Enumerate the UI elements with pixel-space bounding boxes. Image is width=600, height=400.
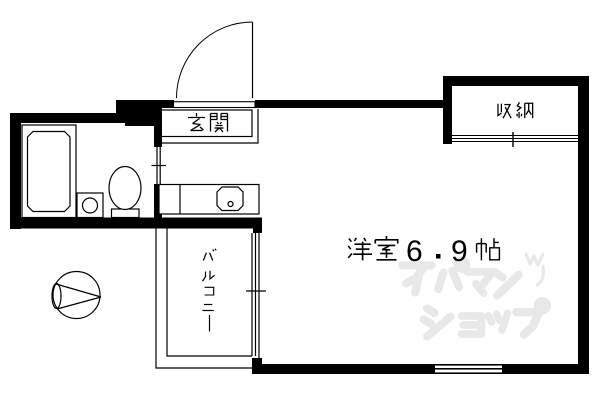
svg-text:6: 6: [406, 235, 423, 268]
svg-text:9: 9: [451, 235, 468, 268]
